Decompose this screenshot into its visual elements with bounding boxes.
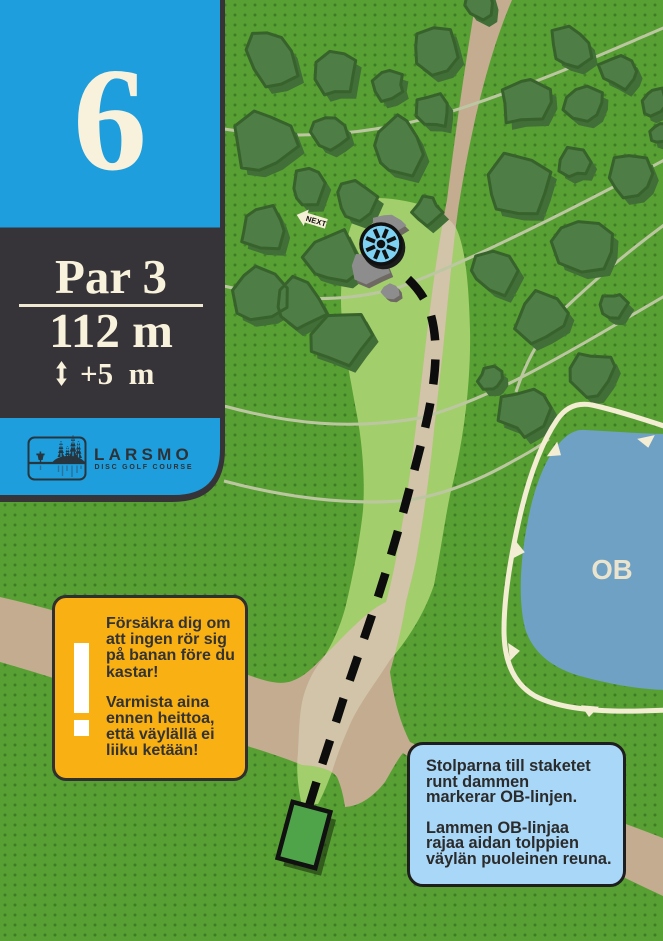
svg-text:OB: OB: [591, 554, 632, 585]
